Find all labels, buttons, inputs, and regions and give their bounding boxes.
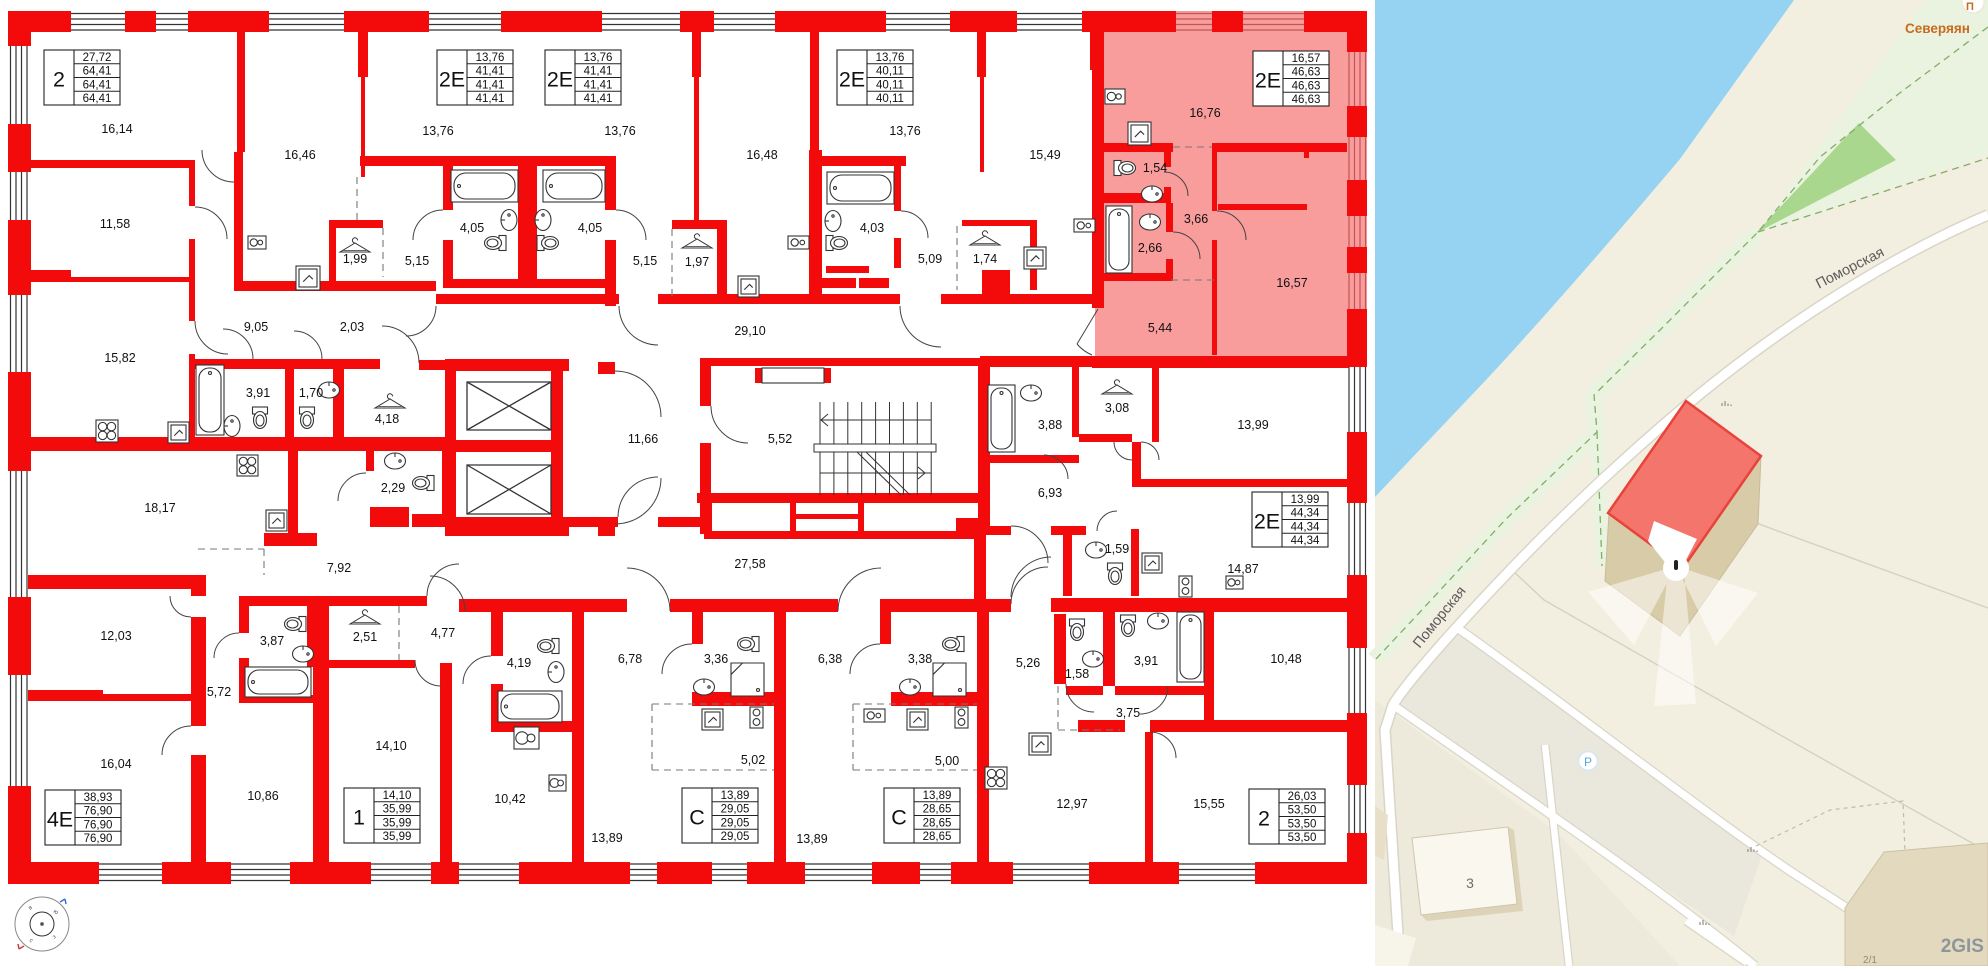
svg-text:5,09: 5,09 [918, 252, 942, 266]
svg-text:1,54: 1,54 [1143, 161, 1167, 175]
svg-text:2E: 2E [439, 68, 465, 92]
svg-text:76,90: 76,90 [84, 819, 113, 831]
svg-text:4,05: 4,05 [578, 221, 602, 235]
svg-text:3,88: 3,88 [1038, 418, 1062, 432]
svg-text:41,41: 41,41 [476, 93, 505, 105]
svg-text:4,77: 4,77 [431, 626, 455, 640]
svg-text:3,75: 3,75 [1116, 706, 1140, 720]
svg-text:40,11: 40,11 [876, 93, 904, 105]
svg-text:35,99: 35,99 [383, 817, 412, 829]
svg-text:Северяян: Северяян [1905, 21, 1970, 36]
svg-text:5,44: 5,44 [1148, 321, 1172, 335]
svg-text:C: C [891, 806, 907, 830]
svg-text:11,66: 11,66 [628, 432, 658, 446]
svg-text:3,91: 3,91 [246, 386, 270, 400]
svg-text:4E: 4E [47, 808, 73, 832]
svg-text:27,58: 27,58 [734, 557, 765, 571]
svg-text:46,63: 46,63 [1292, 80, 1321, 92]
svg-text:2,29: 2,29 [381, 481, 405, 495]
svg-text:1,97: 1,97 [685, 255, 709, 269]
svg-text:64,41: 64,41 [83, 93, 112, 105]
svg-text:41,41: 41,41 [584, 79, 613, 91]
svg-text:9,05: 9,05 [244, 320, 268, 334]
svg-text:76,90: 76,90 [84, 806, 113, 818]
svg-text:2,66: 2,66 [1138, 241, 1162, 255]
svg-text:3: 3 [1466, 875, 1474, 891]
svg-text:12,97: 12,97 [1056, 797, 1087, 811]
svg-text:1,58: 1,58 [1065, 667, 1089, 681]
svg-text:1,99: 1,99 [343, 252, 367, 266]
svg-text:18,17: 18,17 [144, 501, 175, 515]
svg-text:16,57: 16,57 [1276, 276, 1307, 290]
svg-text:16,04: 16,04 [100, 757, 131, 771]
svg-text:3,08: 3,08 [1105, 401, 1129, 415]
svg-text:64,41: 64,41 [83, 66, 112, 78]
svg-text:3,36: 3,36 [704, 652, 728, 666]
svg-text:4,03: 4,03 [860, 221, 884, 235]
svg-text:13,99: 13,99 [1291, 494, 1320, 506]
svg-text:2: 2 [1258, 807, 1270, 831]
svg-text:44,34: 44,34 [1291, 535, 1320, 547]
svg-text:44,34: 44,34 [1291, 521, 1320, 533]
svg-text:13,76: 13,76 [476, 52, 505, 64]
svg-text:16,76: 16,76 [1189, 106, 1220, 120]
svg-text:41,41: 41,41 [584, 93, 613, 105]
svg-text:P: P [1584, 755, 1592, 769]
svg-text:2: 2 [53, 68, 65, 92]
svg-text:13,76: 13,76 [889, 124, 920, 138]
svg-text:5,15: 5,15 [633, 254, 657, 268]
svg-text:28,65: 28,65 [923, 831, 952, 843]
svg-text:10,42: 10,42 [494, 792, 525, 806]
svg-text:6,93: 6,93 [1038, 486, 1062, 500]
svg-text:14,87: 14,87 [1227, 562, 1258, 576]
svg-text:2E: 2E [1254, 510, 1280, 534]
svg-text:15,82: 15,82 [104, 351, 135, 365]
svg-text:40,11: 40,11 [876, 66, 904, 78]
svg-text:27,72: 27,72 [83, 52, 112, 64]
svg-text:40,11: 40,11 [876, 79, 904, 91]
svg-text:2,03: 2,03 [340, 320, 364, 334]
svg-text:14,10: 14,10 [383, 790, 412, 802]
svg-text:12,03: 12,03 [100, 629, 131, 643]
svg-text:41,41: 41,41 [476, 66, 505, 78]
svg-text:7,92: 7,92 [327, 561, 351, 575]
svg-text:П: П [1966, 1, 1974, 13]
svg-text:35,99: 35,99 [383, 831, 412, 843]
svg-text:1,59: 1,59 [1105, 542, 1129, 556]
svg-text:4,19: 4,19 [507, 656, 531, 670]
svg-text:28,65: 28,65 [923, 804, 952, 816]
svg-text:13,89: 13,89 [923, 790, 952, 802]
svg-text:3,91: 3,91 [1134, 654, 1158, 668]
svg-text:16,14: 16,14 [101, 122, 132, 136]
svg-text:13,89: 13,89 [796, 832, 827, 846]
svg-text:3,87: 3,87 [260, 634, 284, 648]
svg-text:16,57: 16,57 [1292, 53, 1321, 65]
svg-text:2E: 2E [547, 68, 573, 92]
svg-text:3,66: 3,66 [1184, 212, 1208, 226]
svg-text:5,00: 5,00 [935, 754, 959, 768]
svg-text:5,52: 5,52 [768, 432, 792, 446]
svg-text:38,93: 38,93 [84, 792, 113, 804]
svg-text:41,41: 41,41 [584, 66, 613, 78]
svg-text:29,05: 29,05 [721, 817, 750, 829]
svg-text:53,50: 53,50 [1288, 805, 1317, 817]
svg-text:64,41: 64,41 [83, 79, 112, 91]
svg-text:15,55: 15,55 [1193, 797, 1224, 811]
svg-text:44,34: 44,34 [1291, 508, 1320, 520]
svg-text:53,50: 53,50 [1288, 818, 1317, 830]
svg-text:5,02: 5,02 [741, 753, 765, 767]
svg-text:13,89: 13,89 [721, 790, 750, 802]
svg-text:46,63: 46,63 [1292, 67, 1321, 79]
svg-text:1,74: 1,74 [973, 252, 997, 266]
svg-text:16,46: 16,46 [284, 148, 315, 162]
svg-text:28,65: 28,65 [923, 817, 952, 829]
svg-text:13,76: 13,76 [876, 52, 905, 64]
svg-text:35,99: 35,99 [383, 804, 412, 816]
svg-text:5,72: 5,72 [207, 685, 231, 699]
svg-text:2GIS: 2GIS [1941, 936, 1984, 957]
svg-text:4,18: 4,18 [375, 412, 399, 426]
svg-text:6,38: 6,38 [818, 652, 842, 666]
svg-text:10,48: 10,48 [1270, 652, 1301, 666]
svg-text:6,78: 6,78 [618, 652, 642, 666]
svg-text:5,26: 5,26 [1016, 656, 1040, 670]
svg-text:16,48: 16,48 [746, 148, 777, 162]
svg-text:15,49: 15,49 [1029, 148, 1060, 162]
svg-text:2E: 2E [1255, 69, 1281, 93]
svg-text:41,41: 41,41 [476, 79, 505, 91]
svg-text:1: 1 [353, 806, 365, 830]
svg-text:2E: 2E [839, 68, 865, 92]
svg-text:11,58: 11,58 [100, 217, 130, 231]
svg-text:1,70: 1,70 [299, 386, 323, 400]
svg-text:53,50: 53,50 [1288, 832, 1317, 844]
svg-text:5,15: 5,15 [405, 254, 429, 268]
svg-text:C: C [689, 806, 705, 830]
svg-text:46,63: 46,63 [1292, 94, 1321, 106]
svg-text:4,05: 4,05 [460, 221, 484, 235]
svg-text:26,03: 26,03 [1288, 791, 1317, 803]
svg-text:10,86: 10,86 [247, 789, 278, 803]
svg-text:29,05: 29,05 [721, 804, 750, 816]
svg-text:2/1: 2/1 [1863, 955, 1877, 966]
svg-text:13,76: 13,76 [584, 52, 613, 64]
svg-text:2,51: 2,51 [353, 630, 377, 644]
svg-text:13,76: 13,76 [604, 124, 635, 138]
svg-text:76,90: 76,90 [84, 833, 113, 845]
svg-text:13,89: 13,89 [591, 831, 622, 845]
svg-text:29,05: 29,05 [721, 831, 750, 843]
svg-text:13,76: 13,76 [422, 124, 453, 138]
svg-text:3,38: 3,38 [908, 652, 932, 666]
svg-text:29,10: 29,10 [734, 324, 765, 338]
svg-text:14,10: 14,10 [375, 739, 406, 753]
svg-text:13,99: 13,99 [1237, 418, 1268, 432]
